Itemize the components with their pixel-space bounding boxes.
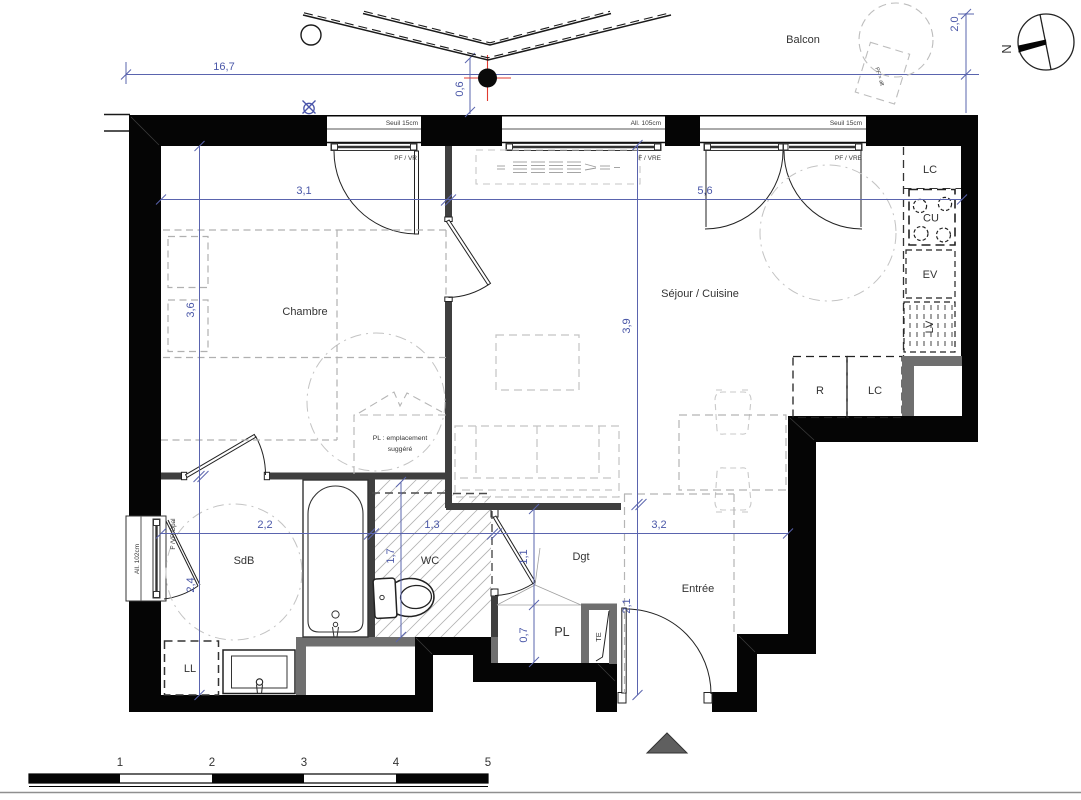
svg-text:1: 1 xyxy=(117,757,123,769)
svg-text:2: 2 xyxy=(209,757,215,769)
svg-text:LL: LL xyxy=(184,663,196,675)
svg-text:All. 105cm: All. 105cm xyxy=(631,120,661,127)
svg-text:1,7: 1,7 xyxy=(385,548,397,563)
svg-text:SdB: SdB xyxy=(234,555,255,567)
svg-text:PF / VRE: PF / VRE xyxy=(835,155,863,162)
svg-text:Seuil 15cm: Seuil 15cm xyxy=(386,120,418,127)
svg-text:R: R xyxy=(816,385,824,397)
svg-text:0,6: 0,6 xyxy=(454,81,466,96)
svg-text:5,6: 5,6 xyxy=(697,185,712,197)
svg-text:Balcon: Balcon xyxy=(786,34,820,46)
svg-text:3: 3 xyxy=(301,757,307,769)
svg-text:1,3: 1,3 xyxy=(424,519,439,531)
svg-text:Séjour / Cuisine: Séjour / Cuisine xyxy=(661,288,739,300)
svg-text:2,4: 2,4 xyxy=(185,577,197,592)
svg-text:0,7: 0,7 xyxy=(518,627,530,642)
svg-text:Seuil 15cm: Seuil 15cm xyxy=(830,120,862,127)
svg-text:1,1: 1,1 xyxy=(518,549,530,564)
svg-text:F /VR Opal: F /VR Opal xyxy=(170,518,177,549)
svg-text:LC: LC xyxy=(868,385,882,397)
svg-text:2,0: 2,0 xyxy=(949,16,961,31)
svg-text:CU: CU xyxy=(923,213,939,225)
svg-text:PL : emplacement: PL : emplacement xyxy=(373,435,428,442)
svg-text:2,1: 2,1 xyxy=(621,598,633,613)
svg-text:2,2: 2,2 xyxy=(257,519,272,531)
svg-text:suggéré: suggéré xyxy=(388,446,413,453)
svg-text:PF / VR: PF / VR xyxy=(394,155,417,162)
svg-text:PL: PL xyxy=(554,625,569,639)
svg-text:LV: LV xyxy=(924,320,936,333)
svg-text:3,9: 3,9 xyxy=(621,318,633,333)
svg-text:16,7: 16,7 xyxy=(213,61,234,73)
svg-text:5: 5 xyxy=(485,757,491,769)
svg-text:N: N xyxy=(999,44,1014,53)
svg-text:3,2: 3,2 xyxy=(651,519,666,531)
svg-text:WC: WC xyxy=(421,555,439,567)
svg-text:4: 4 xyxy=(393,757,400,769)
svg-text:TE: TE xyxy=(594,632,603,642)
svg-text:All. 102cm: All. 102cm xyxy=(134,544,141,574)
svg-text:Entrée: Entrée xyxy=(682,583,714,595)
svg-text:EV: EV xyxy=(923,269,938,281)
svg-text:F / VRE: F / VRE xyxy=(638,155,661,162)
svg-text:Chambre: Chambre xyxy=(282,306,327,318)
svg-text:LC: LC xyxy=(923,164,937,176)
svg-text:3,6: 3,6 xyxy=(185,302,197,317)
svg-text:Dgt: Dgt xyxy=(572,551,589,563)
svg-text:3,1: 3,1 xyxy=(296,185,311,197)
